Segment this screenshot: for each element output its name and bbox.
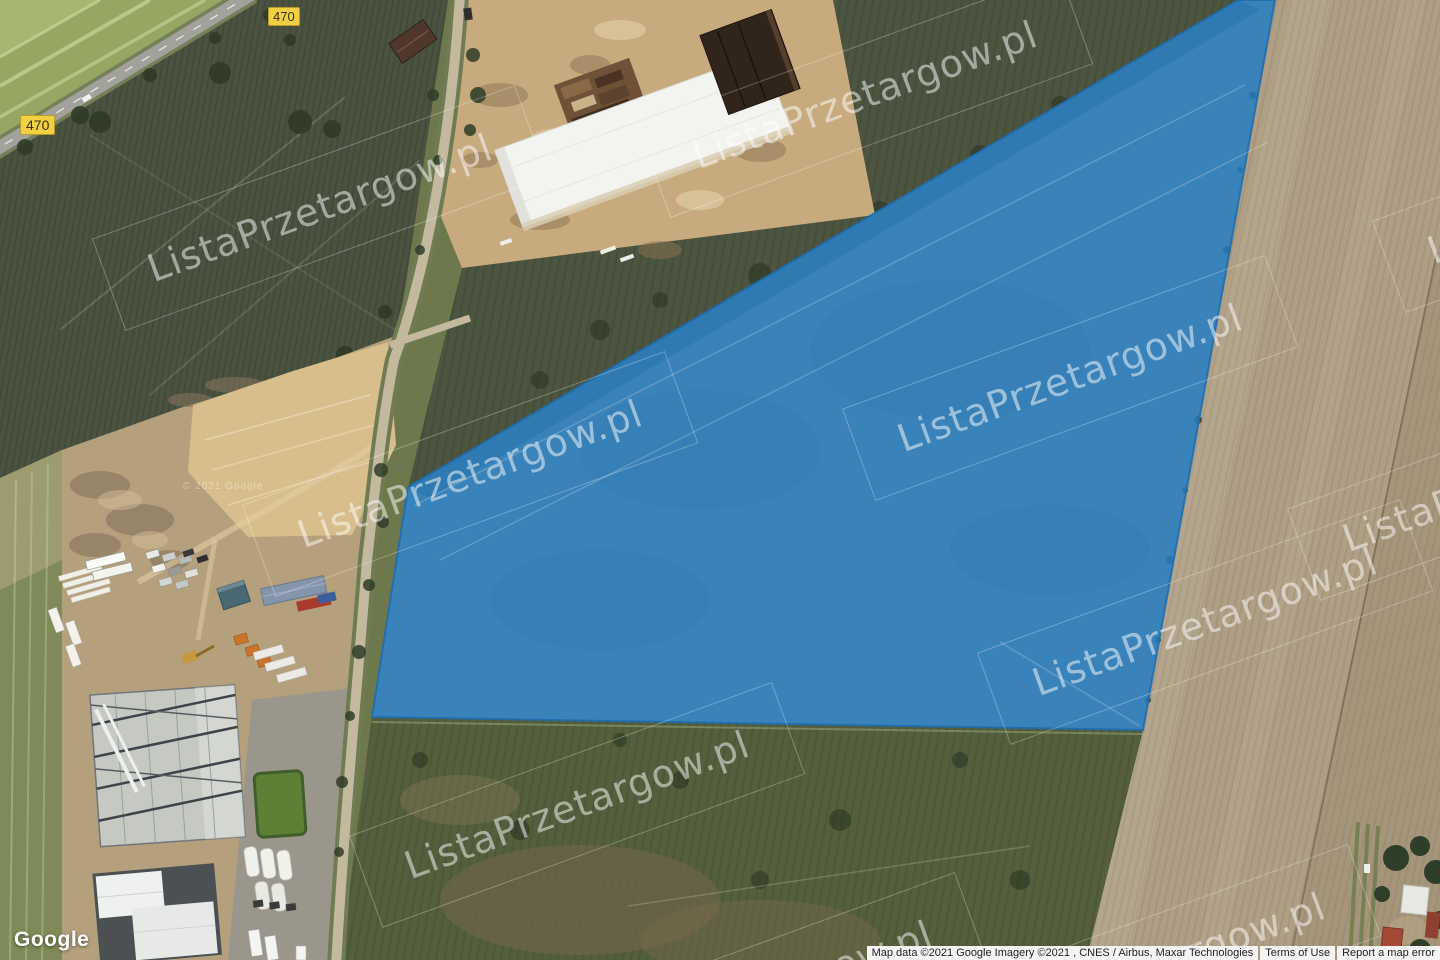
route-badge-label: 470 [26, 117, 49, 133]
farm-building-red [1425, 911, 1440, 938]
terms-of-use-link[interactable]: Terms of Use [1260, 946, 1335, 960]
farm-building-white [1401, 885, 1430, 916]
vehicle [463, 8, 473, 21]
google-logo[interactable]: Google [14, 928, 89, 952]
attribution-bar: Map data ©2021 Google Imagery ©2021 , CN… [867, 946, 1440, 960]
satellite-imagery [0, 0, 1440, 960]
lattice-construction [90, 685, 245, 847]
map-data-attribution: Map data ©2021 Google Imagery ©2021 , CN… [867, 946, 1259, 960]
report-map-error-link[interactable]: Report a map error [1337, 946, 1440, 960]
route-badge-470-top: 470 [268, 7, 300, 26]
field-strip-left [0, 450, 62, 960]
map-canvas[interactable]: © 2021 Google ListaPrzetargow.plListaPrz… [0, 0, 1440, 960]
route-badge-470-left: 470 [20, 115, 55, 135]
grass-field-bottom [340, 717, 1143, 960]
warehouse-bottom [92, 863, 222, 960]
imagery-ghost-credit: © 2021 Google [183, 481, 263, 492]
route-badge-label: 470 [273, 9, 295, 24]
pond [254, 770, 306, 837]
